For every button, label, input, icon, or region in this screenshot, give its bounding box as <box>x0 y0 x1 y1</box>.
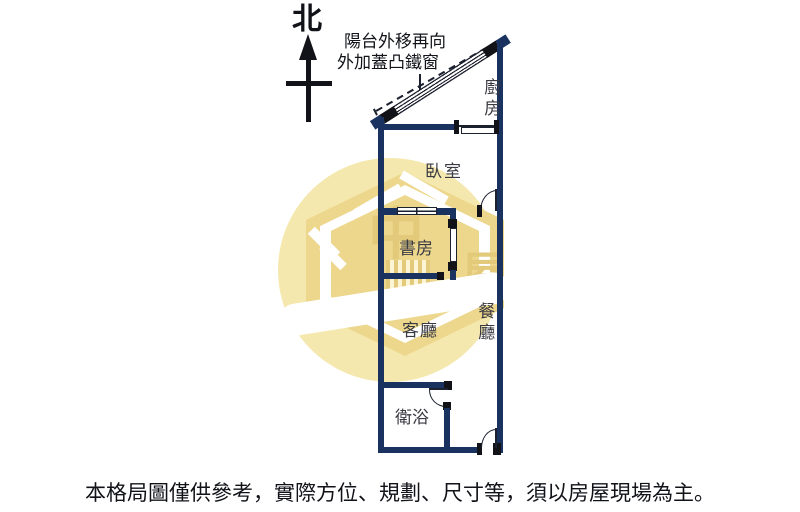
wall-bathroom-east <box>444 408 450 453</box>
room-label-study: 書房 <box>399 238 433 259</box>
north-arrow-shaft <box>306 58 311 122</box>
annotation-line-1: 陽台外移再向 <box>344 32 446 53</box>
study-door-cap-top <box>448 219 457 228</box>
room-label-bedroom: 臥室 <box>425 161 463 182</box>
kitchen-window-jamb-right <box>494 120 499 134</box>
north-arrow-icon <box>299 34 317 60</box>
bedroom-door-arc <box>480 190 497 211</box>
annotation-line-2: 外加蓋凸鐵窗 <box>337 53 439 74</box>
wall-study-living <box>378 273 440 279</box>
study-door-leaf <box>450 228 457 262</box>
wall-left <box>378 117 384 453</box>
kitchen-window <box>461 127 495 134</box>
north-arrow-crossbar <box>286 81 332 86</box>
wall-kitchen-bedroom <box>378 124 456 130</box>
room-label-dining: 餐廳 <box>477 301 497 344</box>
north-label: 北 <box>292 5 322 35</box>
wall-study-living-cap <box>437 272 444 280</box>
room-label-living: 客廳 <box>402 320 438 341</box>
disclaimer-text: 本格局圖僅供參考，實際方位、規劃、尺寸等，須以房屋現場為主。 <box>0 477 800 507</box>
room-label-kitchen: 廚房 <box>483 77 503 120</box>
bedroom-window <box>397 207 437 215</box>
entry-door-arc <box>481 429 496 448</box>
kitchen-window-jamb-left <box>454 120 459 134</box>
study-partition-stub-bottom <box>450 270 456 280</box>
wall-bottom <box>378 447 480 453</box>
room-label-bathroom: 衛浴 <box>395 407 429 428</box>
floor-plan-page: 中 屋 北 陽台外移再向 外加蓋凸鐵窗 <box>0 0 800 512</box>
